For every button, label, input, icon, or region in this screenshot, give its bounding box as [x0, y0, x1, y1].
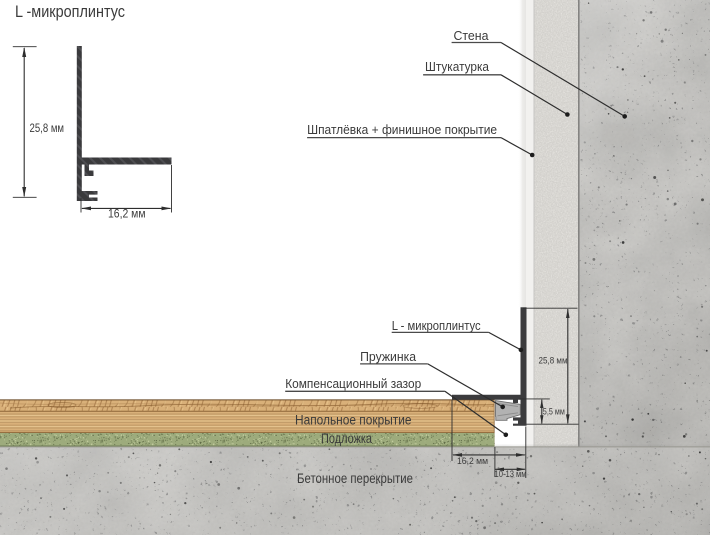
- svg-text:16,2 мм: 16,2 мм: [457, 456, 488, 467]
- svg-text:25,8 мм: 25,8 мм: [30, 121, 65, 135]
- svg-text:10-13 мм: 10-13 мм: [495, 469, 527, 480]
- svg-text:Стена: Стена: [454, 28, 490, 43]
- svg-text:25,8 мм: 25,8 мм: [539, 356, 568, 367]
- svg-text:Компенсационный зазор: Компенсационный зазор: [285, 376, 421, 391]
- svg-text:L -микроплинтус: L -микроплинтус: [15, 3, 125, 21]
- svg-text:5,5 мм: 5,5 мм: [543, 407, 565, 418]
- svg-text:L - микроплинтус: L - микроплинтус: [392, 318, 481, 333]
- svg-text:16,2 мм: 16,2 мм: [108, 207, 146, 221]
- svg-text:Шпатлёвка + финишное покрытие: Шпатлёвка + финишное покрытие: [307, 122, 497, 137]
- svg-text:Пружинка: Пружинка: [360, 349, 417, 364]
- svg-text:Подложка: Подложка: [321, 431, 372, 446]
- svg-text:Напольное покрытие: Напольное покрытие: [295, 413, 412, 428]
- svg-text:Бетонное перекрытие: Бетонное перекрытие: [297, 471, 413, 486]
- svg-text:Штукатурка: Штукатурка: [425, 59, 490, 74]
